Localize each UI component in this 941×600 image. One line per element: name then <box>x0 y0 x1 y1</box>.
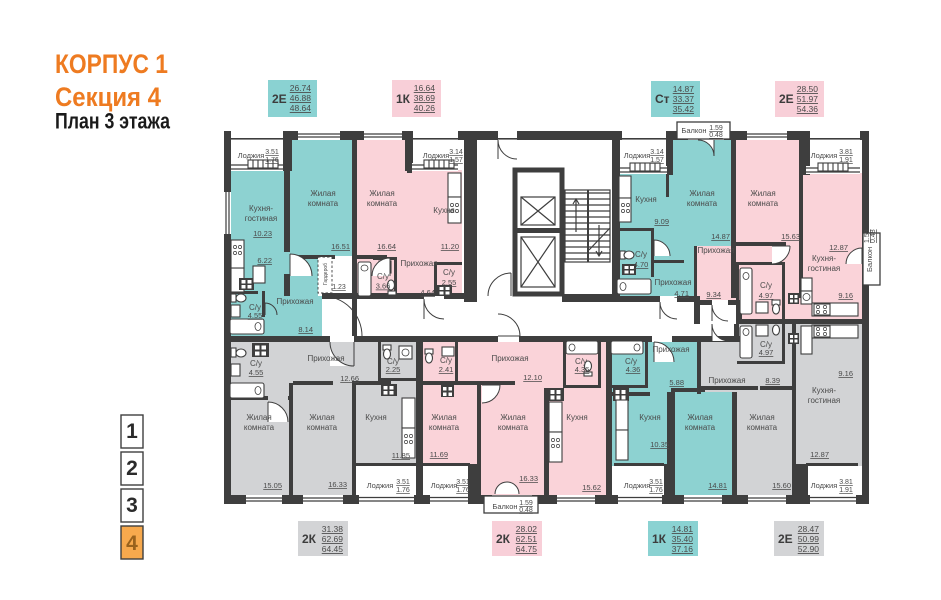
svg-text:1К: 1К <box>396 92 411 106</box>
svg-text:6.22: 6.22 <box>257 256 272 265</box>
svg-text:Секция 4: Секция 4 <box>55 82 161 112</box>
svg-text:2Е: 2Е <box>272 92 287 106</box>
svg-text:0.48: 0.48 <box>519 507 533 514</box>
svg-text:комната: комната <box>747 423 778 432</box>
svg-text:9.16: 9.16 <box>838 369 853 378</box>
svg-text:1.76: 1.76 <box>265 157 279 164</box>
svg-text:комната: комната <box>307 423 338 432</box>
svg-text:0.48: 0.48 <box>709 132 723 139</box>
svg-text:С/у: С/у <box>440 356 452 365</box>
svg-text:Кухня: Кухня <box>635 195 656 204</box>
svg-text:гостиная: гостиная <box>808 264 841 273</box>
svg-text:4.55: 4.55 <box>248 311 263 320</box>
svg-text:КОРПУС 1: КОРПУС 1 <box>55 49 168 79</box>
svg-text:Лоджия: Лоджия <box>238 151 265 160</box>
svg-text:Прихожая: Прихожая <box>491 354 528 363</box>
svg-text:3.51: 3.51 <box>649 479 663 486</box>
svg-text:1.76: 1.76 <box>649 487 663 494</box>
svg-text:4.70: 4.70 <box>634 260 649 269</box>
svg-text:10.35: 10.35 <box>650 440 669 449</box>
svg-text:Кухня-: Кухня- <box>812 254 836 263</box>
svg-text:С/у: С/у <box>760 281 772 290</box>
svg-text:Балкон: Балкон <box>492 502 517 511</box>
svg-text:2К: 2К <box>302 532 317 546</box>
svg-text:1.91: 1.91 <box>839 157 853 164</box>
svg-text:Жилая: Жилая <box>749 413 774 422</box>
svg-text:С/у: С/у <box>250 359 262 368</box>
svg-text:Жилая: Жилая <box>689 189 714 198</box>
svg-text:Лоджия: Лоджия <box>811 481 838 490</box>
svg-text:11.20: 11.20 <box>441 242 459 251</box>
svg-text:3.81: 3.81 <box>839 149 853 156</box>
svg-text:Лоджия: Лоджия <box>423 151 450 160</box>
svg-text:гостиная: гостиная <box>808 396 841 405</box>
svg-text:33.37: 33.37 <box>673 94 695 104</box>
svg-text:2.25: 2.25 <box>386 365 401 374</box>
svg-text:2Е: 2Е <box>779 92 794 106</box>
svg-text:14.81: 14.81 <box>708 481 727 490</box>
svg-text:С/у: С/у <box>635 250 647 259</box>
svg-text:Кухня: Кухня <box>566 413 587 422</box>
svg-text:1.76: 1.76 <box>456 487 470 494</box>
svg-text:8.14: 8.14 <box>298 325 313 334</box>
svg-text:1К: 1К <box>652 532 667 546</box>
svg-text:54.36: 54.36 <box>797 104 819 114</box>
svg-text:гостиная: гостиная <box>245 214 278 223</box>
svg-text:12.10: 12.10 <box>523 373 542 382</box>
svg-text:План 3 этажа: План 3 этажа <box>55 109 171 134</box>
svg-text:Жилая: Жилая <box>310 189 335 198</box>
svg-text:Жилая: Жилая <box>750 189 775 198</box>
svg-text:35.40: 35.40 <box>672 534 694 544</box>
svg-text:Гардероб: Гардероб <box>323 263 329 285</box>
svg-text:2.41: 2.41 <box>439 365 454 374</box>
svg-text:28.47: 28.47 <box>798 524 820 534</box>
svg-text:64.45: 64.45 <box>322 544 344 554</box>
svg-text:10.23: 10.23 <box>253 229 272 238</box>
svg-text:4.64: 4.64 <box>420 288 435 297</box>
svg-text:комната: комната <box>685 423 716 432</box>
svg-text:комната: комната <box>748 199 779 208</box>
svg-text:9.09: 9.09 <box>654 217 669 226</box>
svg-text:16.64: 16.64 <box>414 83 436 93</box>
svg-text:Прихожая: Прихожая <box>708 376 745 385</box>
svg-text:11.69: 11.69 <box>430 450 448 459</box>
svg-text:Лоджия: Лоджия <box>624 151 651 160</box>
svg-text:1.59: 1.59 <box>519 500 533 507</box>
svg-text:Жилая: Жилая <box>309 413 334 422</box>
svg-text:комната: комната <box>687 199 718 208</box>
svg-text:4.97: 4.97 <box>759 291 774 300</box>
svg-text:3.51: 3.51 <box>396 479 410 486</box>
svg-text:4.97: 4.97 <box>759 348 774 357</box>
svg-text:С/у: С/у <box>377 272 389 281</box>
svg-text:Балкон: Балкон <box>681 126 706 135</box>
svg-text:31.38: 31.38 <box>322 524 344 534</box>
svg-text:2.55: 2.55 <box>442 278 457 287</box>
svg-text:Лоджия: Лоджия <box>367 481 394 490</box>
svg-text:50.99: 50.99 <box>798 534 820 544</box>
svg-text:3.51: 3.51 <box>265 149 279 156</box>
svg-text:15.60: 15.60 <box>772 481 791 490</box>
svg-text:28.02: 28.02 <box>516 524 538 534</box>
svg-text:С/у: С/у <box>443 268 455 277</box>
svg-text:2: 2 <box>126 457 138 480</box>
svg-text:14.81: 14.81 <box>672 524 694 534</box>
svg-text:14.87: 14.87 <box>711 232 730 241</box>
svg-text:4: 4 <box>126 532 138 555</box>
svg-text:4.71: 4.71 <box>674 289 689 298</box>
svg-text:3.14: 3.14 <box>449 149 463 156</box>
svg-text:46.88: 46.88 <box>290 93 312 103</box>
svg-text:Лоджия: Лоджия <box>624 481 651 490</box>
svg-text:16.64: 16.64 <box>377 242 396 251</box>
svg-text:15.63: 15.63 <box>781 232 800 241</box>
svg-text:1.59: 1.59 <box>709 125 723 132</box>
svg-text:3.81: 3.81 <box>839 479 853 486</box>
svg-text:Кухня: Кухня <box>365 413 386 422</box>
svg-text:16.33: 16.33 <box>519 474 538 483</box>
svg-text:Прихожая: Прихожая <box>654 278 691 287</box>
svg-text:62.51: 62.51 <box>516 534 538 544</box>
svg-text:8.39: 8.39 <box>765 376 780 385</box>
svg-text:Кухня: Кухня <box>639 413 660 422</box>
svg-text:40.26: 40.26 <box>414 103 436 113</box>
svg-text:15.05: 15.05 <box>263 481 282 490</box>
svg-text:51.97: 51.97 <box>797 94 819 104</box>
svg-text:1.57: 1.57 <box>449 157 463 164</box>
svg-text:2К: 2К <box>496 532 511 546</box>
svg-text:12.66: 12.66 <box>340 374 359 383</box>
svg-text:48.64: 48.64 <box>290 103 312 113</box>
svg-text:52.90: 52.90 <box>798 544 820 554</box>
svg-text:Лоджия: Лоджия <box>811 151 838 160</box>
svg-text:Лоджия: Лоджия <box>431 481 458 490</box>
svg-text:11.85: 11.85 <box>392 451 410 460</box>
svg-text:Жилая: Жилая <box>500 413 525 422</box>
svg-text:28.50: 28.50 <box>797 84 819 94</box>
svg-text:9.16: 9.16 <box>838 291 853 300</box>
svg-text:4.36: 4.36 <box>626 365 641 374</box>
svg-text:Прихожая: Прихожая <box>276 297 313 306</box>
svg-text:Прихожая: Прихожая <box>697 246 734 255</box>
svg-text:комната: комната <box>429 423 460 432</box>
svg-text:16.33: 16.33 <box>328 480 347 489</box>
svg-text:14.87: 14.87 <box>673 84 695 94</box>
svg-text:38.69: 38.69 <box>414 93 436 103</box>
svg-text:Прихожая: Прихожая <box>307 354 344 363</box>
svg-text:1.76: 1.76 <box>396 487 410 494</box>
svg-text:3.14: 3.14 <box>650 149 664 156</box>
svg-text:12.87: 12.87 <box>829 243 848 252</box>
svg-text:Жилая: Жилая <box>687 413 712 422</box>
svg-text:16.51: 16.51 <box>331 242 350 251</box>
svg-text:Ст: Ст <box>655 92 670 106</box>
svg-text:0.48: 0.48 <box>870 229 877 243</box>
svg-text:Жилая: Жилая <box>431 413 456 422</box>
svg-text:комната: комната <box>308 199 339 208</box>
svg-text:комната: комната <box>498 423 529 432</box>
svg-text:Жилая: Жилая <box>369 189 394 198</box>
svg-text:4.36: 4.36 <box>575 365 590 374</box>
svg-text:1: 1 <box>126 420 138 443</box>
svg-text:35.42: 35.42 <box>673 104 695 114</box>
svg-text:26.74: 26.74 <box>290 83 312 93</box>
svg-text:Кухня-: Кухня- <box>249 204 273 213</box>
svg-text:1.57: 1.57 <box>650 157 664 164</box>
svg-text:Балкон: Балкон <box>865 247 874 272</box>
svg-text:37.16: 37.16 <box>672 544 694 554</box>
svg-text:1.23: 1.23 <box>332 284 346 291</box>
svg-text:3.66: 3.66 <box>376 282 391 291</box>
svg-text:3.51: 3.51 <box>456 479 470 486</box>
svg-text:Кухня: Кухня <box>433 206 454 215</box>
svg-text:5.88: 5.88 <box>669 378 684 387</box>
svg-text:9.34: 9.34 <box>706 290 721 299</box>
svg-text:12.87: 12.87 <box>810 450 829 459</box>
svg-text:3: 3 <box>126 494 138 517</box>
svg-text:комната: комната <box>244 423 275 432</box>
svg-text:2Е: 2Е <box>778 532 793 546</box>
svg-text:Прихожая: Прихожая <box>652 345 689 354</box>
svg-text:15.62: 15.62 <box>582 483 601 492</box>
svg-text:Жилая: Жилая <box>246 413 271 422</box>
svg-text:4.55: 4.55 <box>249 368 264 377</box>
svg-text:Кухня-: Кухня- <box>812 386 836 395</box>
svg-text:62.69: 62.69 <box>322 534 344 544</box>
svg-text:Прихожая: Прихожая <box>400 259 437 268</box>
svg-text:64.75: 64.75 <box>516 544 538 554</box>
svg-text:комната: комната <box>367 199 398 208</box>
svg-text:1.91: 1.91 <box>839 487 853 494</box>
